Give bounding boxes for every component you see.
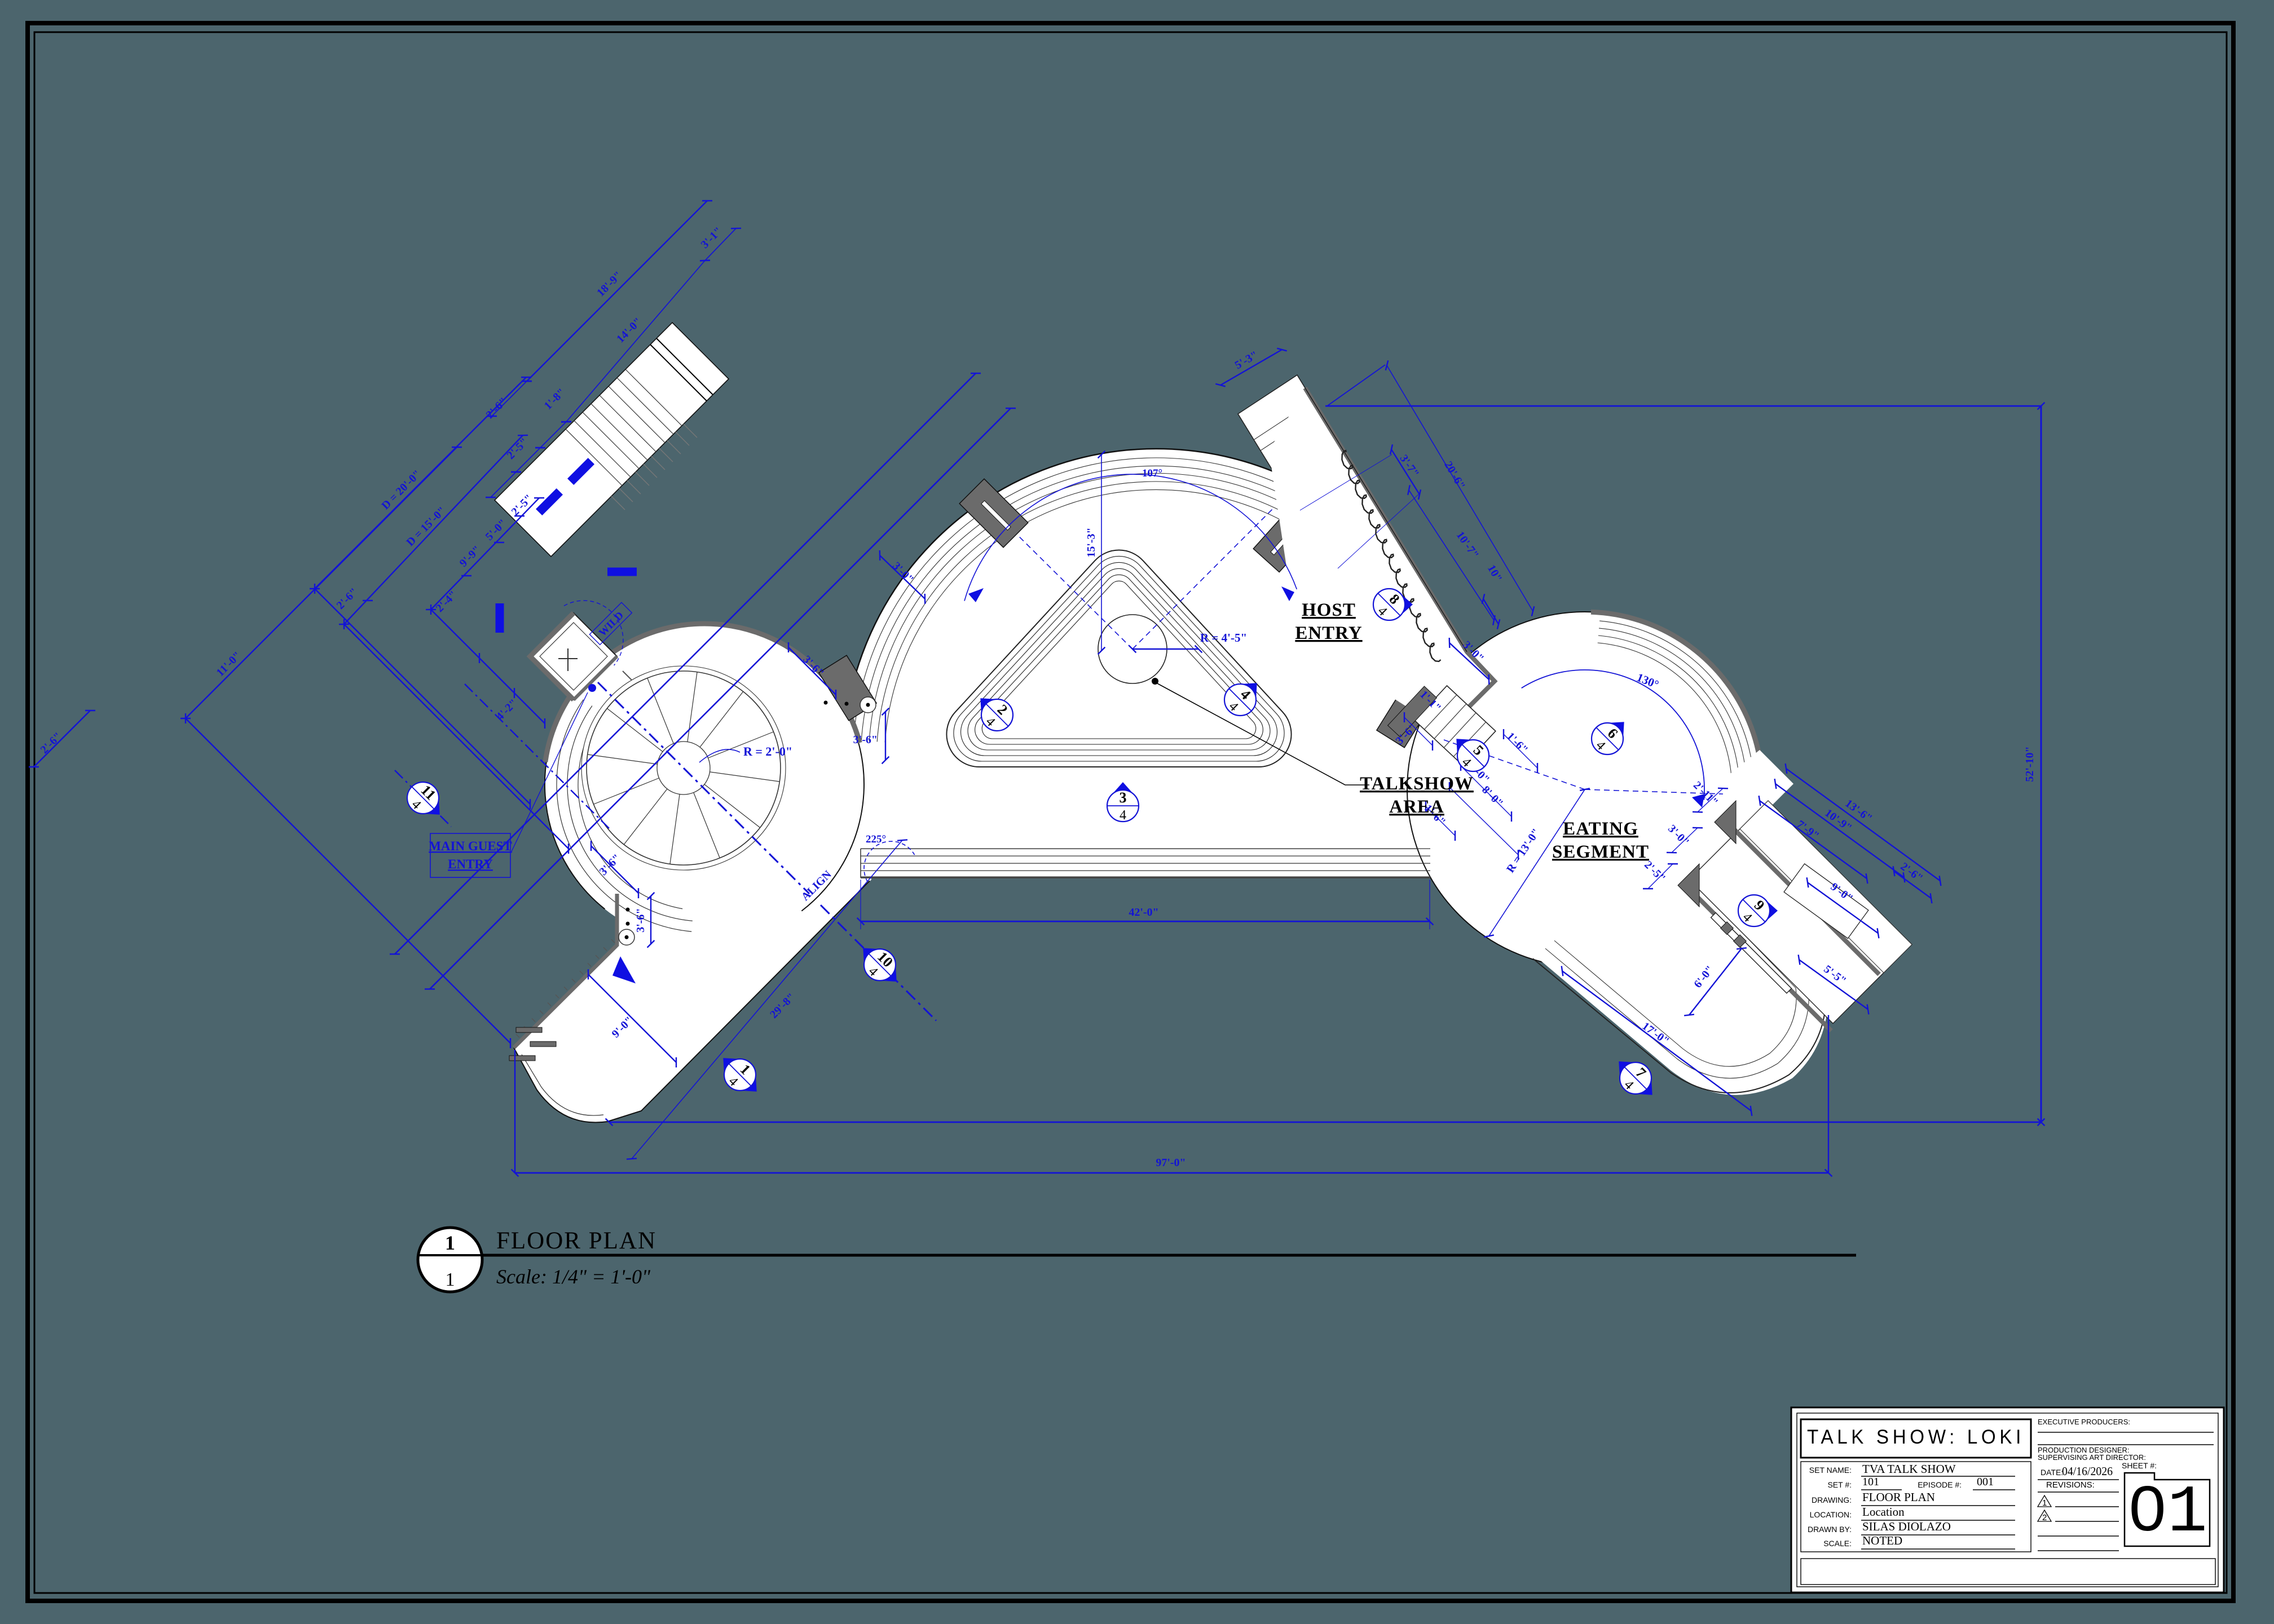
svg-text:04/16/2026: 04/16/2026 — [2062, 1464, 2113, 1478]
svg-text:52'-10": 52'-10" — [2024, 746, 2036, 782]
svg-text:HOST: HOST — [1302, 600, 1356, 620]
svg-text:TALKSHOW: TALKSHOW — [1360, 774, 1474, 794]
svg-text:SILAS DIOLAZO: SILAS DIOLAZO — [1862, 1520, 1951, 1533]
svg-text:AREA: AREA — [1389, 797, 1444, 817]
svg-text:DRAWN BY:: DRAWN BY: — [1808, 1525, 1852, 1534]
svg-text:REVISIONS:: REVISIONS: — [2046, 1480, 2095, 1490]
svg-text:SUPERVISING ART DIRECTOR:: SUPERVISING ART DIRECTOR: — [2038, 1453, 2146, 1462]
svg-text:2: 2 — [2042, 1513, 2047, 1522]
svg-text:ENTRY: ENTRY — [1295, 623, 1362, 643]
svg-text:ENTRY: ENTRY — [448, 857, 493, 871]
svg-text:4: 4 — [1120, 808, 1126, 823]
svg-text:TALK SHOW: LOKI: TALK SHOW: LOKI — [1807, 1426, 2025, 1448]
svg-text:3: 3 — [1120, 789, 1127, 806]
svg-text:SET #:: SET #: — [1827, 1480, 1852, 1489]
svg-text:LOCATION:: LOCATION: — [1810, 1510, 1852, 1519]
svg-text:Location: Location — [1862, 1505, 1905, 1519]
svg-text:TVA TALK SHOW: TVA TALK SHOW — [1862, 1462, 1956, 1476]
svg-text:101: 101 — [1862, 1476, 1879, 1488]
svg-text:MAIN GUEST: MAIN GUEST — [429, 839, 512, 853]
svg-text:R = 2'-0": R = 2'-0" — [743, 744, 792, 758]
svg-text:EATING: EATING — [1563, 819, 1638, 839]
svg-text:107°: 107° — [1142, 467, 1162, 479]
svg-text:Scale: 1/4" = 1'-0": Scale: 1/4" = 1'-0" — [496, 1265, 651, 1288]
svg-text:3'-6": 3'-6" — [634, 908, 647, 932]
svg-text:FLOOR PLAN: FLOOR PLAN — [1862, 1490, 1935, 1504]
svg-text:SHEET #:: SHEET #: — [2122, 1461, 2157, 1470]
svg-text:01: 01 — [2127, 1476, 2207, 1551]
svg-text:42'-0": 42'-0" — [1129, 906, 1158, 919]
svg-text:97'-0": 97'-0" — [1156, 1157, 1186, 1169]
svg-text:1: 1 — [445, 1232, 455, 1254]
svg-text:EXECUTIVE PRODUCERS:: EXECUTIVE PRODUCERS: — [2038, 1418, 2130, 1426]
svg-text:NOTED: NOTED — [1862, 1534, 1902, 1547]
svg-text:001: 001 — [1977, 1476, 1994, 1488]
svg-text:1: 1 — [2042, 1498, 2047, 1508]
svg-text:SET NAME:: SET NAME: — [1809, 1466, 1852, 1475]
svg-text:225°: 225° — [866, 833, 886, 845]
svg-text:SCALE:: SCALE: — [1823, 1539, 1852, 1548]
svg-text:R = 4'-5": R = 4'-5" — [1200, 631, 1247, 645]
svg-text:DATE:: DATE: — [2041, 1468, 2063, 1477]
svg-text:EPISODE #:: EPISODE #: — [1918, 1480, 1962, 1489]
svg-text:15'-3": 15'-3" — [1085, 527, 1098, 557]
svg-text:DRAWING:: DRAWING: — [1812, 1495, 1852, 1504]
svg-text:3'-6": 3'-6" — [853, 734, 878, 746]
svg-text:FLOOR PLAN: FLOOR PLAN — [496, 1228, 656, 1254]
svg-text:SEGMENT: SEGMENT — [1552, 842, 1649, 862]
svg-text:1: 1 — [446, 1269, 455, 1290]
